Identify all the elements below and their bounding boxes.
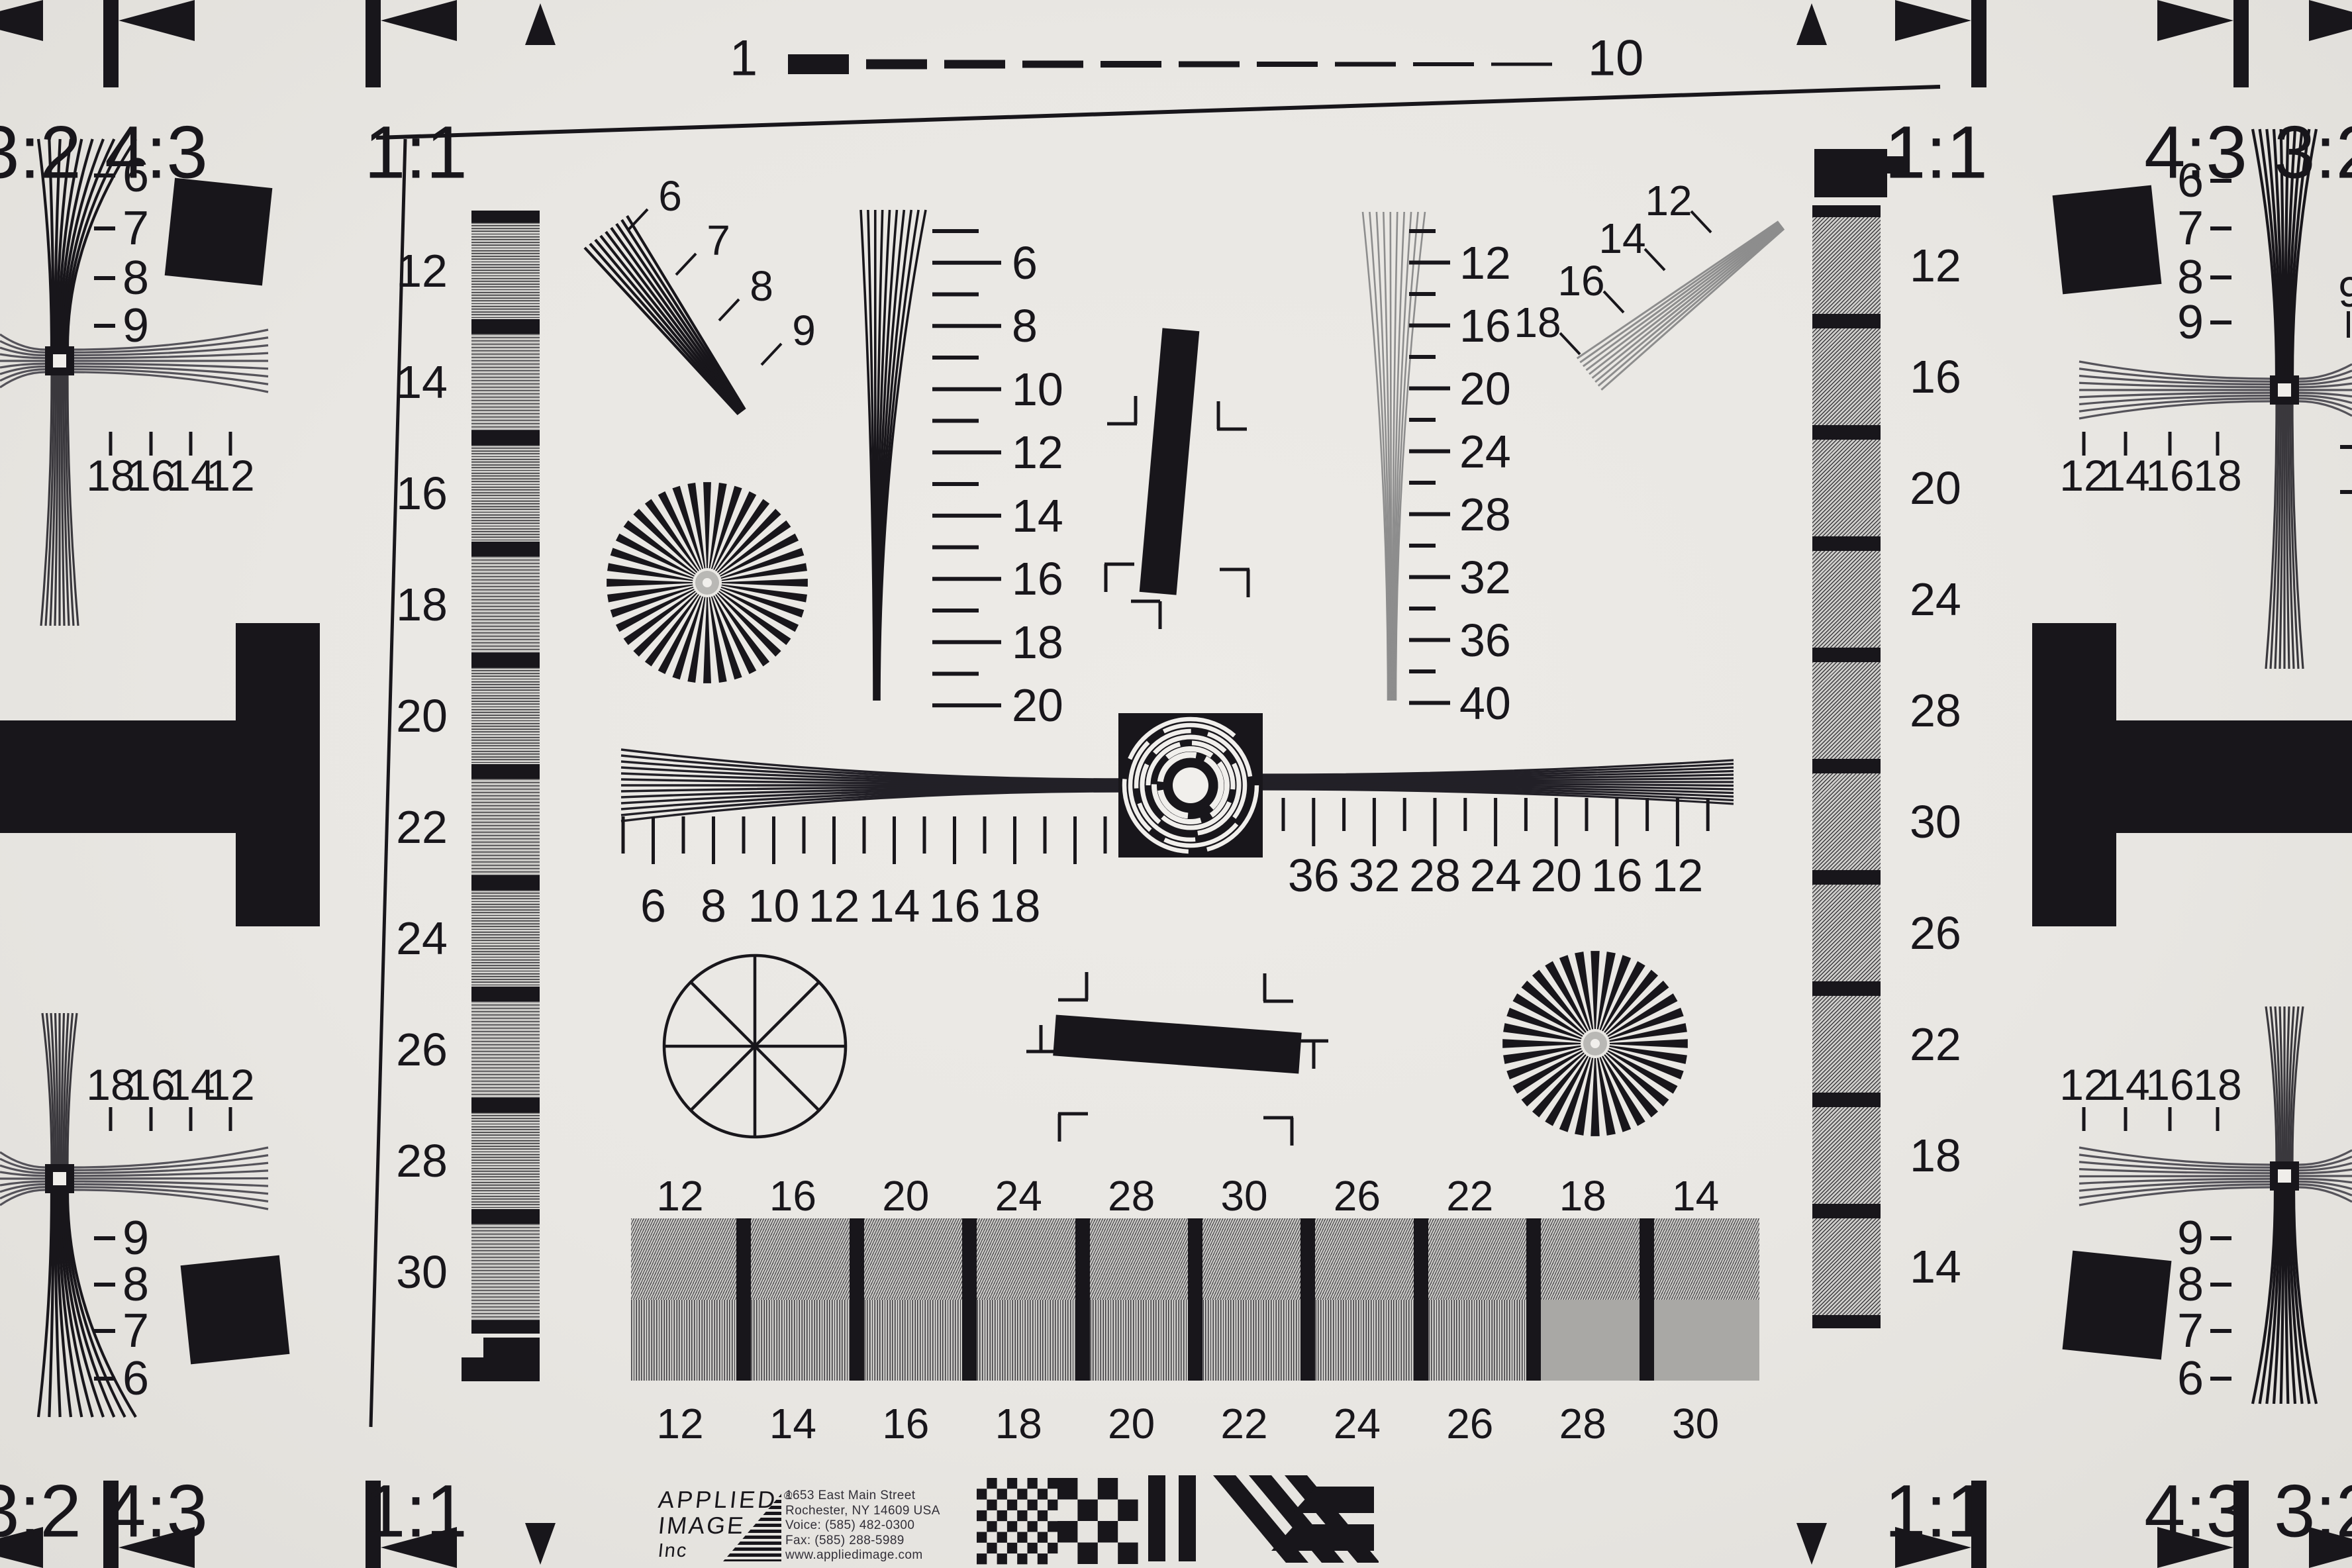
sweep-scale-label: 16: [1591, 849, 1643, 902]
gray-bar-segment: [1812, 885, 1881, 981]
gray-bar-segment: [471, 445, 540, 542]
strip-top-label: 14: [1672, 1171, 1719, 1220]
logo-address-line: Voice: (585) 482-0300: [785, 1518, 940, 1534]
sweep-scale-label: 8: [701, 879, 726, 932]
aspect-ratio-label: 3:2: [0, 110, 81, 195]
aspect-ratio-label: 3:2: [2274, 1469, 2352, 1554]
edge-fragment-label: 9: [2338, 268, 2352, 317]
gray-bar-segment: [1812, 1218, 1881, 1315]
strip-bottom-label: 16: [882, 1399, 929, 1448]
corner-tick-label: 18: [2193, 1059, 2241, 1110]
gray-bar-segment: [1812, 996, 1881, 1093]
wedge-scale-label: 12: [1459, 236, 1511, 289]
sweep-scale-label: 28: [1409, 849, 1461, 902]
logo-address-line: www.appliedimage.com: [785, 1548, 940, 1563]
wedge-scale-label: 16: [1012, 552, 1063, 605]
corner-wedge-label: 8: [122, 251, 149, 305]
gray-bar-label: 14: [396, 356, 448, 409]
aspect-ratio-label: 1:1: [364, 110, 467, 195]
sweep-scale-label: 12: [808, 879, 860, 932]
gray-bar-label: 28: [1910, 684, 1961, 737]
gray-bar-segment: [471, 667, 540, 764]
gray-bar-segment: [471, 556, 540, 653]
gray-bar-label: 24: [396, 912, 448, 965]
corner-tick-label: 16: [2145, 450, 2194, 501]
gray-bar-segment: [1812, 551, 1881, 648]
strip-bottom-label: 20: [1108, 1399, 1155, 1448]
corner-wedge-label: 6: [122, 148, 149, 203]
strip-bottom-label: 30: [1672, 1399, 1719, 1448]
corner-wedge-label: 6: [122, 1351, 149, 1406]
strip-top-label: 18: [1559, 1171, 1606, 1220]
strip-top-label: 30: [1220, 1171, 1267, 1220]
strip-upper-segment: [1421, 1218, 1534, 1300]
gray-bar-label: 28: [396, 1134, 448, 1187]
gray-bar-separator: [1812, 536, 1881, 551]
strip-lower-segment: [744, 1300, 856, 1381]
corner-wedge-label: 7: [122, 1304, 149, 1358]
strip-upper-segment: [1534, 1218, 1646, 1300]
strip-separator: [1414, 1218, 1428, 1381]
strip-lower-segment: [1647, 1300, 1759, 1381]
strip-upper-segment: [1308, 1218, 1420, 1300]
strip-upper-segment: [1083, 1218, 1195, 1300]
gray-bar-segment: [471, 890, 540, 987]
strip-top-label: 20: [882, 1171, 929, 1220]
strip-lower-segment: [857, 1300, 969, 1381]
logo-address-line: Fax: (585) 288-5989: [785, 1534, 940, 1549]
diag-wedge-label: 12: [1645, 176, 1692, 225]
strip-lower-segment: [1421, 1300, 1534, 1381]
diag-wedge-label: 14: [1598, 214, 1645, 263]
gray-bar-separator: [1812, 759, 1881, 773]
diag-wedge-label: 9: [792, 306, 816, 355]
wedge-scale-label: 10: [1012, 363, 1063, 416]
strip-lower-segment: [1083, 1300, 1195, 1381]
sweep-scale-label: 32: [1348, 849, 1400, 902]
wedge-scale-label: 20: [1459, 362, 1511, 415]
strip-separator: [1640, 1218, 1654, 1381]
iso12233-test-chart: APPLIED® IMAGE Inc 1653 East Main Street…: [0, 0, 2352, 1568]
corner-wedge-label: 6: [2177, 1351, 2204, 1406]
sweep-scale-label: 20: [1530, 849, 1582, 902]
gray-bar-separator: [471, 653, 540, 667]
gray-bar-segment: [471, 779, 540, 875]
strip-separator: [736, 1218, 751, 1381]
strip-lower-segment: [631, 1300, 744, 1381]
gray-bar-label: 30: [1910, 795, 1961, 848]
corner-wedge-label: 7: [2177, 1304, 2204, 1358]
gray-bar-separator: [1812, 870, 1881, 885]
gray-bar-label: 26: [396, 1023, 448, 1076]
wedge-scale-label: 36: [1459, 614, 1511, 667]
corner-tick-label: 14: [2101, 1059, 2149, 1110]
aspect-ratio-label: 1:1: [364, 1469, 467, 1554]
gray-bar-label: 18: [396, 578, 448, 631]
aspect-ratio-label: 4:3: [105, 1469, 208, 1554]
gray-bar-segment: [471, 222, 540, 319]
strip-separator: [850, 1218, 864, 1381]
gray-bar-segment: [1812, 217, 1881, 314]
wedge-scale-label: 40: [1459, 677, 1511, 730]
aspect-ratio-label: 3:2: [2274, 110, 2352, 195]
corner-wedge-label: 9: [122, 299, 149, 353]
gray-bar-separator: [471, 1098, 540, 1112]
strip-bottom-label: 14: [769, 1399, 816, 1448]
strip-lower-segment: [1308, 1300, 1420, 1381]
aspect-ratio-label: 1:1: [1885, 110, 1988, 195]
wedge-scale-label: 20: [1012, 679, 1063, 732]
aspect-ratio-label: 1:1: [1885, 1469, 1988, 1554]
strip-separator: [1300, 1218, 1315, 1381]
strip-separator: [962, 1218, 977, 1381]
strip-bottom-label: 26: [1446, 1399, 1493, 1448]
gray-bar-label: 18: [1910, 1129, 1961, 1182]
wedge-scale-label: 18: [1012, 616, 1063, 669]
sweep-scale-label: 18: [989, 879, 1041, 932]
gray-bar-separator: [1812, 314, 1881, 328]
aspect-ratio-label: 4:3: [2144, 1469, 2247, 1554]
strip-top-label: 26: [1334, 1171, 1381, 1220]
gray-bar-label: 20: [1910, 462, 1961, 514]
logo-company-inc: Inc: [657, 1540, 689, 1562]
corner-tick-label: 12: [206, 450, 254, 501]
strip-lower-segment: [1534, 1300, 1646, 1381]
gray-bar-separator: [1812, 1093, 1881, 1107]
sweep-scale-label: 16: [929, 879, 981, 932]
gray-bar-segment: [471, 1224, 540, 1320]
wedge-scale-label: 24: [1459, 425, 1511, 478]
gray-bar-separator: [1812, 425, 1881, 440]
strip-upper-segment: [857, 1218, 969, 1300]
strip-top-label: 16: [769, 1171, 816, 1220]
gray-bar-segment: [1812, 1107, 1881, 1204]
wedge-scale-label: 8: [1012, 299, 1038, 352]
ruler-right-label: 10: [1588, 30, 1644, 87]
gray-bar-label: 30: [396, 1246, 448, 1298]
corner-wedge-label: 7: [122, 201, 149, 256]
corner-wedge-label: 6: [2177, 154, 2204, 208]
gray-bar-separator: [471, 542, 540, 556]
diag-wedge-label: 18: [1514, 298, 1561, 347]
gray-bar-label: 12: [1910, 239, 1961, 292]
strip-upper-segment: [1195, 1218, 1308, 1300]
strip-upper-segment: [744, 1218, 856, 1300]
gray-bar-label: 16: [396, 467, 448, 520]
gray-bar-segment: [1812, 773, 1881, 870]
strip-top-label: 22: [1446, 1171, 1493, 1220]
gray-bar-segment: [1812, 440, 1881, 536]
logo-company-image: IMAGE: [657, 1512, 746, 1540]
strip-bottom-label: 18: [995, 1399, 1042, 1448]
sweep-scale-label: 36: [1288, 849, 1340, 902]
strip-lower-segment: [1195, 1300, 1308, 1381]
gray-bar-separator: [471, 430, 540, 445]
corner-tick-label: 18: [2193, 450, 2241, 501]
diag-wedge-label: 16: [1557, 256, 1604, 305]
gray-bar-label: 20: [396, 689, 448, 742]
strip-lower-segment: [969, 1300, 1082, 1381]
gray-bar-separator: [471, 764, 540, 779]
corner-wedge-label: 9: [2177, 295, 2204, 350]
gray-bar-segment: [1812, 328, 1881, 425]
gray-bar-label: 14: [1910, 1240, 1961, 1293]
gray-bar-label: 24: [1910, 573, 1961, 626]
strip-separator: [1526, 1218, 1541, 1381]
gray-bar-label: 26: [1910, 906, 1961, 959]
strip-upper-segment: [631, 1218, 744, 1300]
sweep-scale-label: 24: [1470, 849, 1522, 902]
gray-bar-segment: [1812, 662, 1881, 759]
gray-bar-label: 16: [1910, 350, 1961, 403]
diag-wedge-label: 7: [707, 216, 730, 265]
strip-separator: [1075, 1218, 1090, 1381]
strip-bottom-label: 22: [1220, 1399, 1267, 1448]
sweep-scale-label: 6: [640, 879, 666, 932]
wedge-scale-label: 16: [1459, 299, 1511, 352]
wedge-scale-label: 28: [1459, 488, 1511, 541]
sweep-scale-label: 14: [869, 879, 920, 932]
gray-bar-separator: [471, 319, 540, 334]
wedge-scale-label: 6: [1012, 236, 1038, 289]
gray-bar-separator: [1812, 981, 1881, 996]
strip-bottom-label: 28: [1559, 1399, 1606, 1448]
logo-address-block: 1653 East Main Street Rochester, NY 1460…: [785, 1489, 940, 1563]
logo-address-line: Rochester, NY 14609 USA: [785, 1504, 940, 1519]
sweep-scale-label: 10: [748, 879, 800, 932]
diag-wedge-label: 6: [658, 171, 682, 220]
strip-separator: [1188, 1218, 1202, 1381]
corner-tick-label: 16: [2145, 1059, 2194, 1110]
wedge-scale-label: 14: [1012, 489, 1063, 542]
gray-bar-segment: [471, 1112, 540, 1209]
aspect-ratio-label: 4:3: [105, 110, 208, 195]
strip-bottom-label: 12: [656, 1399, 703, 1448]
corner-wedge-label: 7: [2177, 201, 2204, 256]
gray-bar-label: 22: [396, 801, 448, 854]
diag-wedge-label: 8: [750, 262, 773, 311]
strip-upper-segment: [969, 1218, 1082, 1300]
strip-top-label: 28: [1108, 1171, 1155, 1220]
gray-bar-segment: [471, 1001, 540, 1098]
corner-tick-label: 12: [206, 1059, 254, 1110]
gray-bar-segment: [471, 334, 540, 430]
strip-bottom-label: 24: [1334, 1399, 1381, 1448]
gray-bar-separator: [471, 1209, 540, 1224]
wedge-scale-label: 32: [1459, 551, 1511, 604]
strip-top-label: 24: [995, 1171, 1042, 1220]
aspect-ratio-label: 3:2: [0, 1469, 81, 1554]
gray-bar-separator: [471, 875, 540, 890]
corner-tick-label: 14: [2101, 450, 2149, 501]
strip-top-label: 12: [656, 1171, 703, 1220]
gray-bar-label: 12: [396, 244, 448, 297]
logo-address-line: 1653 East Main Street: [785, 1489, 940, 1504]
gray-bar-label: 22: [1910, 1018, 1961, 1071]
gray-bar-separator: [1812, 1204, 1881, 1218]
ruler-left-label: 1: [730, 30, 758, 87]
sweep-scale-label: 12: [1651, 849, 1703, 902]
gray-bar-separator: [471, 987, 540, 1001]
strip-upper-segment: [1647, 1218, 1759, 1300]
logo-text-applied: APPLIED: [657, 1486, 779, 1513]
applied-image-logo: APPLIED® IMAGE Inc 1653 East Main Street…: [657, 1483, 975, 1568]
wedge-scale-label: 12: [1012, 426, 1063, 479]
gray-bar-separator: [1812, 648, 1881, 662]
